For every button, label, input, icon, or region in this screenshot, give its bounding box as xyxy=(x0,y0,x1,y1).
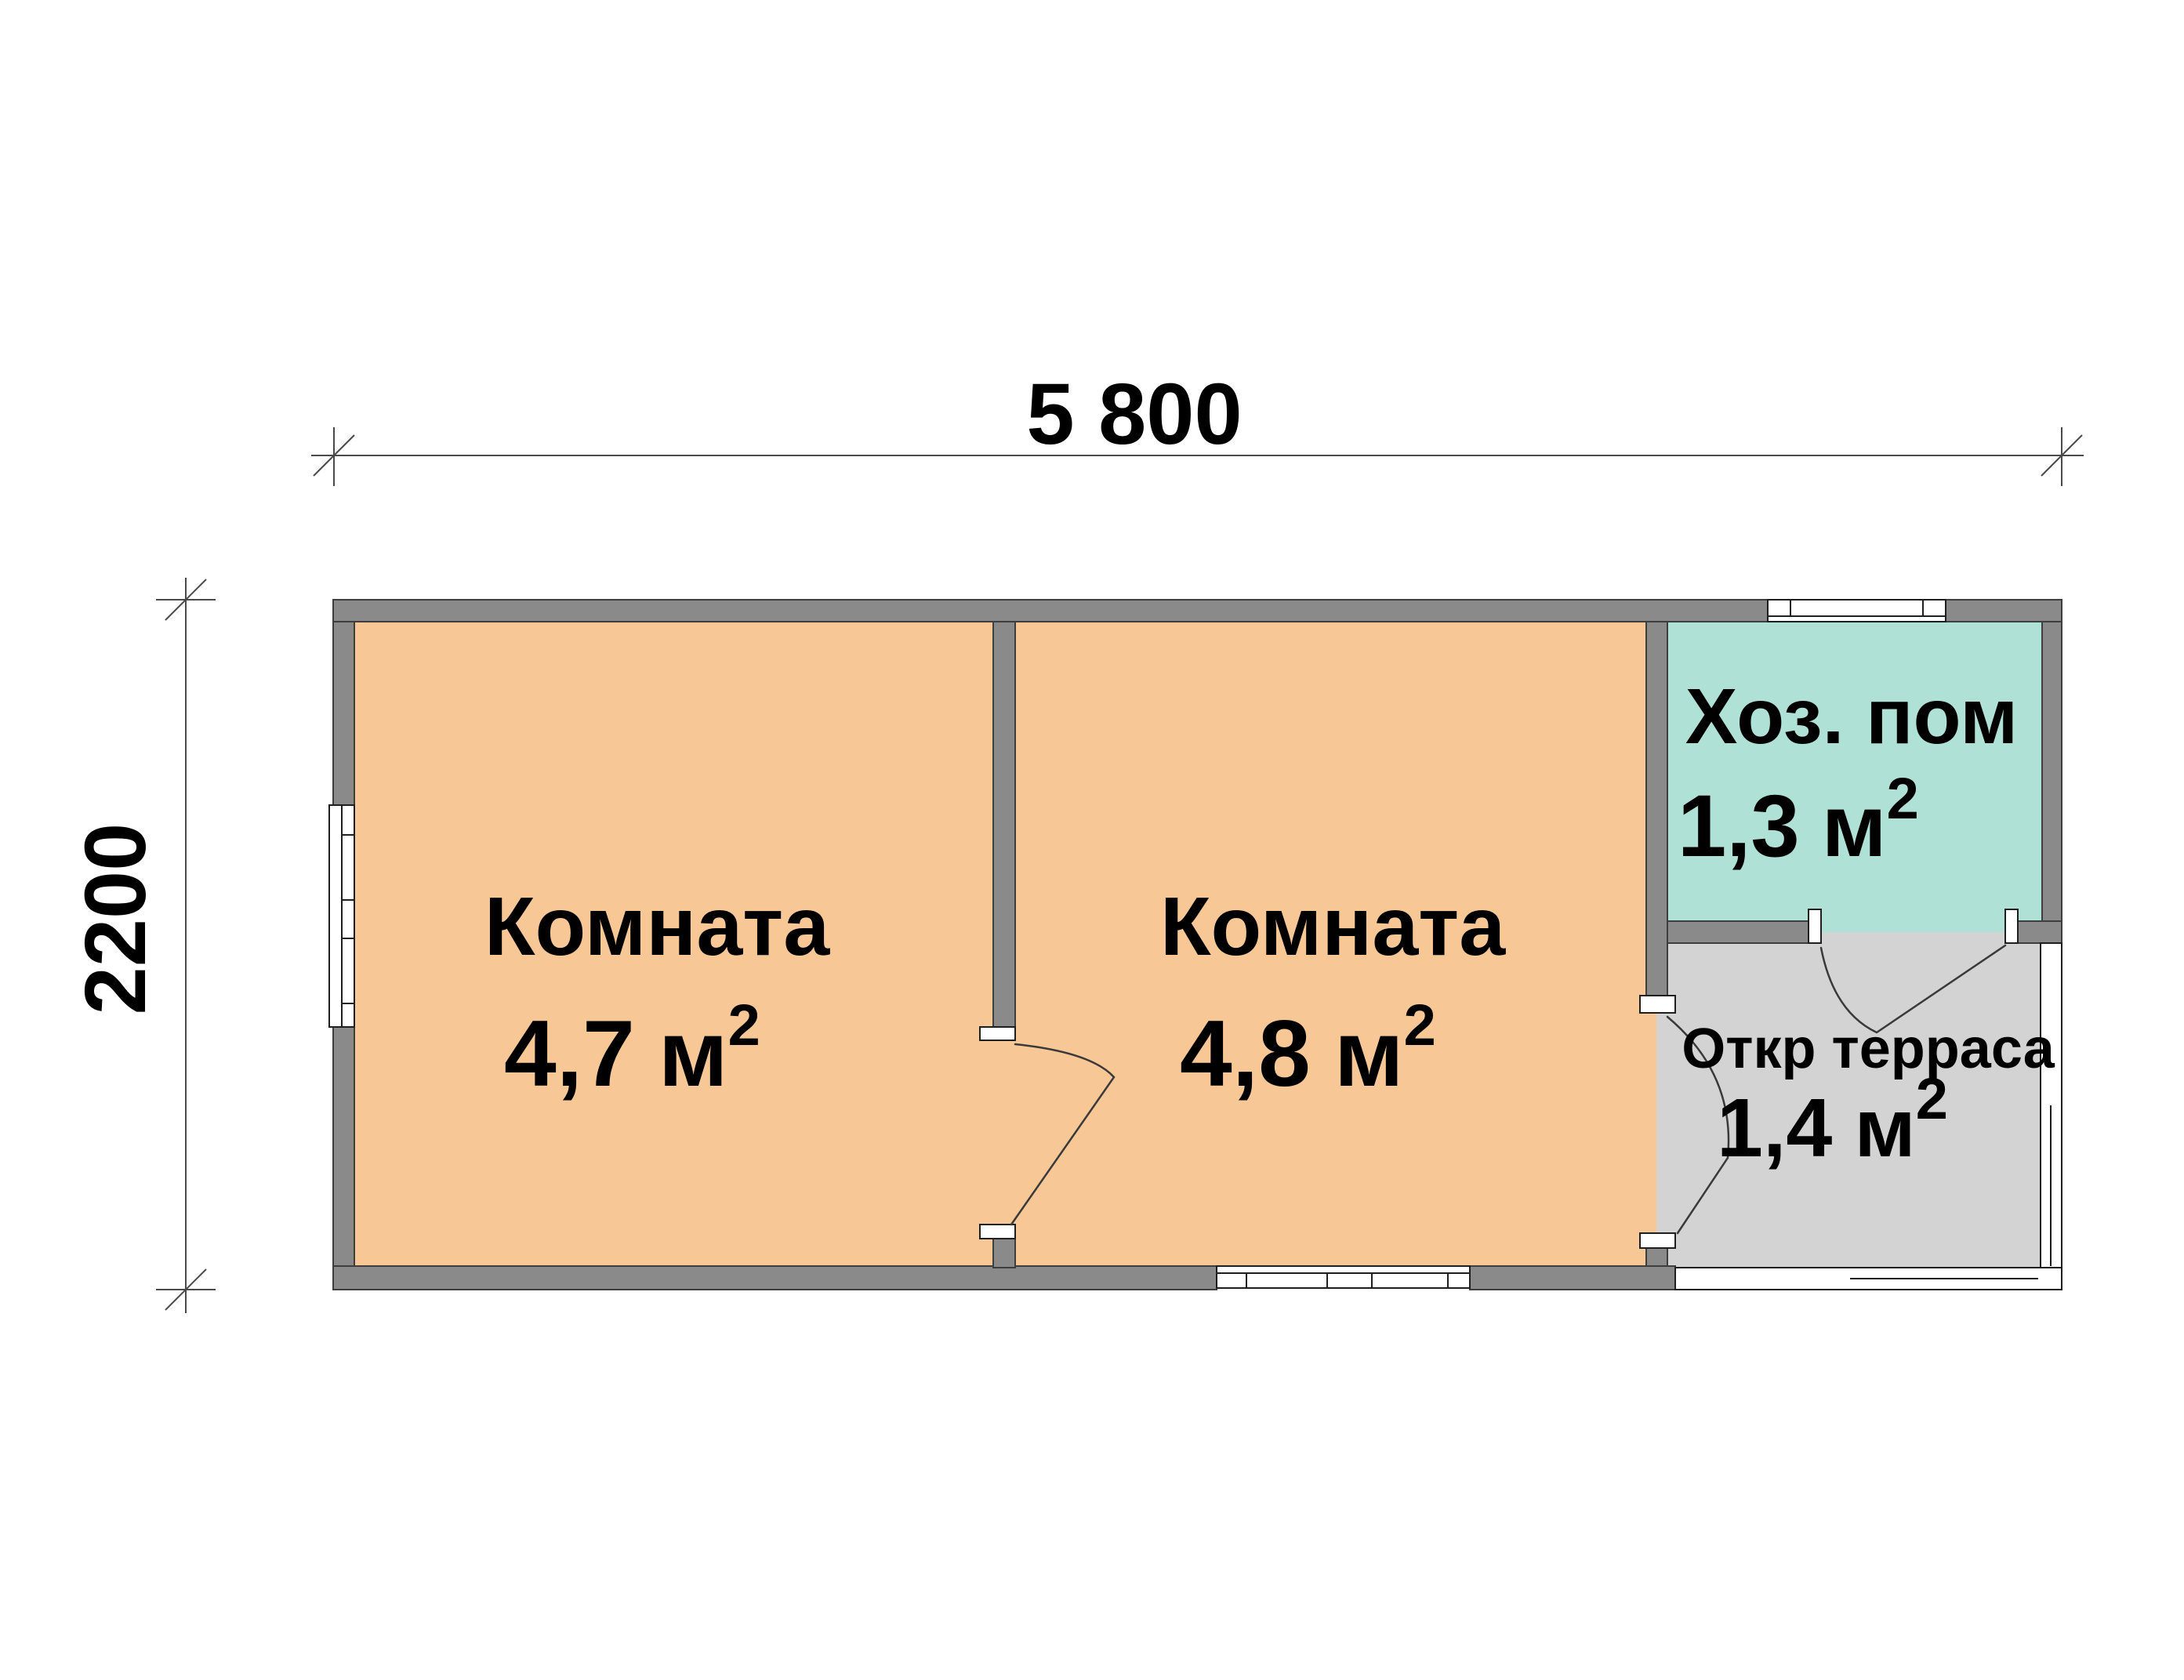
jamb-utility-door-left xyxy=(1809,909,1821,943)
dimension-width: 5 800 xyxy=(311,366,2084,486)
terrace-name: Откр терраса xyxy=(1682,1018,2055,1080)
jamb-terrace-door-top xyxy=(1640,996,1675,1013)
window-left-wall xyxy=(329,805,354,1027)
wall-left-lower xyxy=(333,1027,354,1268)
window-room2-bottom xyxy=(1217,1266,1470,1288)
utility-name: Хоз. пом xyxy=(1685,673,2019,760)
wall-room2-terrace-stub xyxy=(1646,1248,1667,1266)
dim-width-label: 5 800 xyxy=(1026,366,1242,463)
floor-plan-drawing: 5 800 2200 Комната 4,7м2 Комната 4,8м2 Х… xyxy=(0,0,2184,1680)
wall-left-upper xyxy=(333,622,354,805)
jamb-utility-door-right xyxy=(2005,909,2018,943)
room-1-area: 4,7м2 xyxy=(504,992,760,1106)
wall-utility-bottom-left xyxy=(1667,921,1809,943)
wall-top-left xyxy=(333,600,1768,622)
jamb-partition-top xyxy=(980,1027,1015,1040)
dimension-height: 2200 xyxy=(67,578,216,1313)
wall-top-right xyxy=(1946,600,2062,622)
dim-height-label: 2200 xyxy=(67,823,164,1015)
wall-bottom-mid xyxy=(1470,1266,1675,1290)
room-2-area: 4,8м2 xyxy=(1180,992,1436,1106)
wall-utility-bottom-right xyxy=(2018,921,2062,943)
floor-plan-page: 5 800 2200 Комната 4,7м2 Комната 4,8м2 Х… xyxy=(0,0,2184,1680)
wall-partition-upper xyxy=(993,622,1015,1027)
window-top-frame xyxy=(1768,600,1946,622)
room-1-name: Комната xyxy=(484,880,830,973)
utility-area: 1,3м2 xyxy=(1678,766,1919,875)
wall-bottom-left xyxy=(333,1266,1217,1290)
jamb-terrace-door-bottom xyxy=(1640,1233,1675,1248)
window-utility-top xyxy=(1768,600,1946,622)
room-2-name: Комната xyxy=(1160,880,1506,973)
wall-partition-lower xyxy=(993,1239,1015,1268)
window-bottom-frame xyxy=(1217,1266,1470,1288)
wall-room2-terrace-upper xyxy=(1646,622,1667,996)
wall-right xyxy=(2042,622,2062,943)
jamb-partition-bottom xyxy=(980,1225,1015,1239)
